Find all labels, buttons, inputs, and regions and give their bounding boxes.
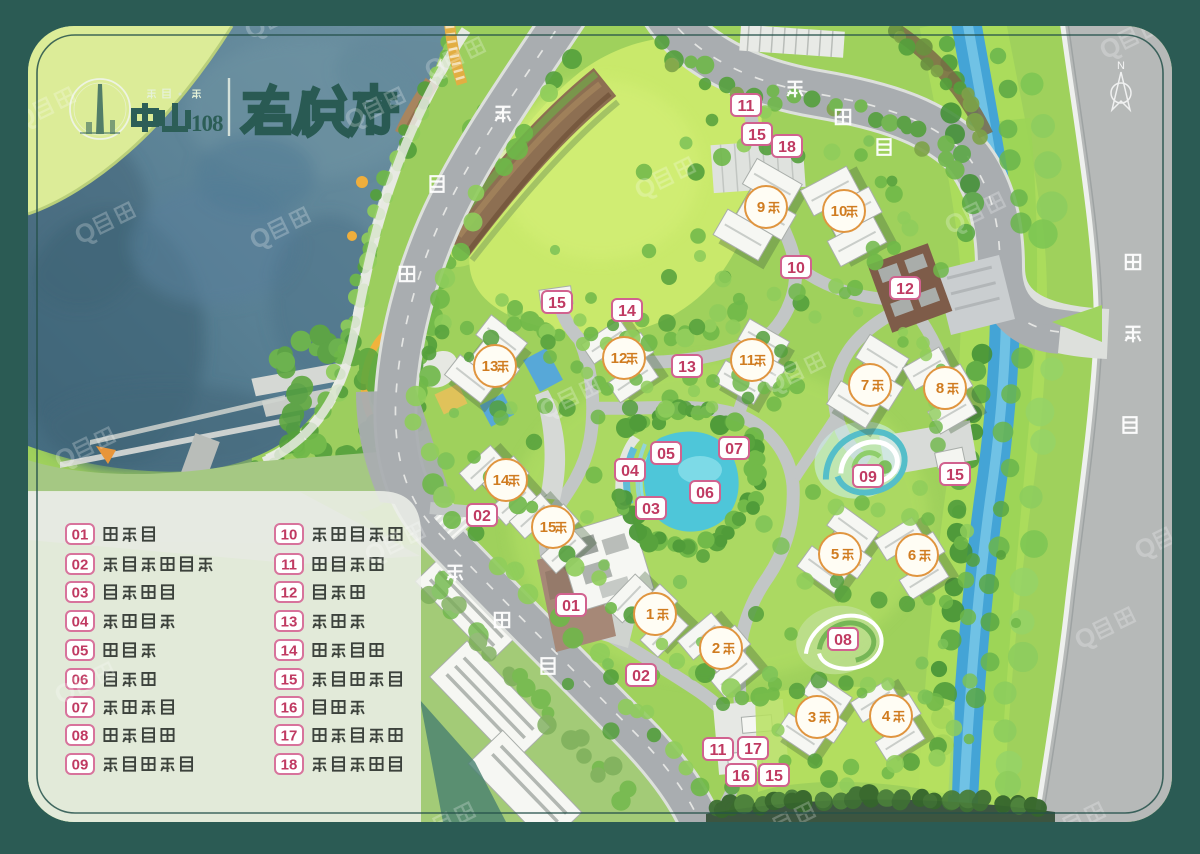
svg-text:8: 8 xyxy=(936,380,944,397)
svg-text:08: 08 xyxy=(72,728,89,745)
svg-text:12: 12 xyxy=(281,585,298,602)
svg-text:16: 16 xyxy=(281,700,298,717)
svg-text:04: 04 xyxy=(621,463,639,480)
svg-text:3: 3 xyxy=(808,709,816,726)
svg-text:16: 16 xyxy=(732,768,750,785)
svg-text:13: 13 xyxy=(281,614,298,631)
svg-text:02: 02 xyxy=(632,668,650,685)
svg-text:18: 18 xyxy=(778,139,796,156)
svg-text:18: 18 xyxy=(281,757,298,774)
svg-text:9: 9 xyxy=(757,199,765,216)
svg-text:13: 13 xyxy=(678,359,696,376)
svg-text:04: 04 xyxy=(72,614,89,631)
svg-text:12: 12 xyxy=(896,281,914,298)
svg-text:17: 17 xyxy=(744,741,762,758)
svg-text:03: 03 xyxy=(642,501,660,518)
svg-text:14: 14 xyxy=(281,643,298,660)
svg-text:05: 05 xyxy=(72,643,89,660)
svg-text:14: 14 xyxy=(618,303,636,320)
svg-text:13: 13 xyxy=(482,358,499,375)
svg-text:15: 15 xyxy=(946,467,964,484)
svg-text:11: 11 xyxy=(281,557,297,574)
svg-text:09: 09 xyxy=(72,757,89,774)
svg-text:5: 5 xyxy=(831,546,839,563)
svg-text:14: 14 xyxy=(493,472,510,489)
svg-text:17: 17 xyxy=(281,728,298,745)
svg-text:15: 15 xyxy=(748,127,766,144)
svg-text:11: 11 xyxy=(739,352,755,369)
svg-text:108: 108 xyxy=(191,111,223,136)
svg-text:02: 02 xyxy=(72,557,89,574)
svg-text:11: 11 xyxy=(710,742,727,759)
svg-text:6: 6 xyxy=(908,547,916,564)
svg-text:15: 15 xyxy=(540,519,557,536)
svg-text:10: 10 xyxy=(281,527,298,544)
svg-text:1: 1 xyxy=(646,606,654,623)
svg-text:11: 11 xyxy=(738,98,755,115)
svg-text:03: 03 xyxy=(72,585,89,602)
svg-text:06: 06 xyxy=(696,485,714,502)
svg-text:15: 15 xyxy=(765,768,783,785)
svg-text:N: N xyxy=(1117,60,1125,72)
svg-text:7: 7 xyxy=(861,377,869,394)
svg-text:07: 07 xyxy=(725,441,743,458)
svg-text:4: 4 xyxy=(882,708,891,725)
svg-text:2: 2 xyxy=(712,640,720,657)
svg-text:10: 10 xyxy=(787,260,805,277)
svg-text:15: 15 xyxy=(548,295,566,312)
svg-text:09: 09 xyxy=(859,469,877,486)
svg-text:01: 01 xyxy=(562,598,580,615)
svg-text:10: 10 xyxy=(831,203,848,220)
svg-text:12: 12 xyxy=(611,350,628,367)
svg-text:08: 08 xyxy=(834,632,852,649)
svg-text:02: 02 xyxy=(473,508,491,525)
svg-text:01: 01 xyxy=(72,527,89,544)
svg-text:15: 15 xyxy=(281,672,298,689)
svg-text:05: 05 xyxy=(657,446,675,463)
